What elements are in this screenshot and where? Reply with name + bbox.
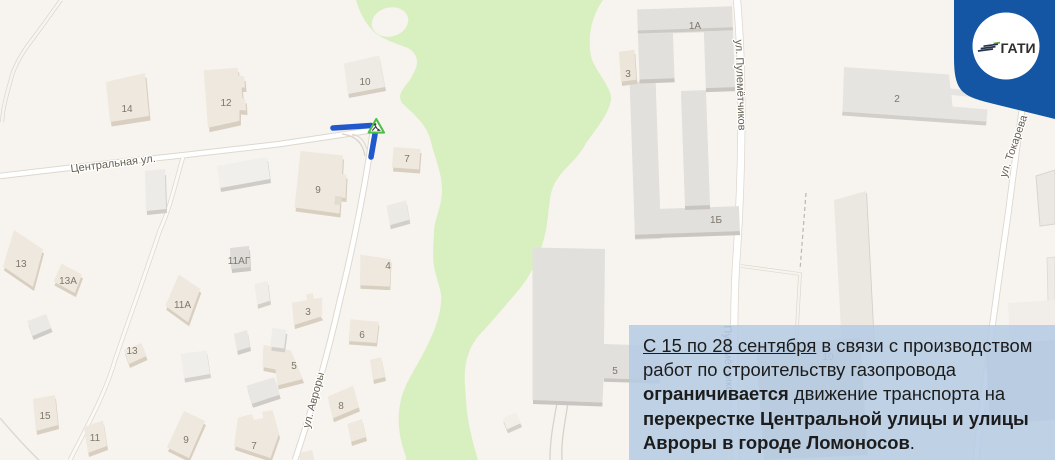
svg-text:5: 5	[612, 366, 618, 377]
svg-text:9: 9	[315, 185, 321, 196]
svg-text:11АГ: 11АГ	[228, 256, 251, 267]
svg-text:3: 3	[305, 307, 311, 318]
svg-text:14: 14	[121, 104, 133, 115]
svg-text:3: 3	[625, 69, 631, 80]
svg-text:13: 13	[15, 259, 27, 270]
svg-text:8: 8	[338, 401, 344, 412]
svg-text:7: 7	[404, 154, 410, 165]
svg-text:11А: 11А	[174, 300, 191, 311]
svg-text:5: 5	[291, 361, 297, 372]
svg-text:1А: 1А	[689, 21, 702, 32]
svg-text:13А: 13А	[59, 276, 77, 287]
svg-text:13: 13	[126, 346, 138, 357]
svg-text:1Б: 1Б	[710, 215, 723, 226]
svg-text:9: 9	[183, 435, 189, 446]
svg-text:12: 12	[220, 98, 232, 109]
svg-text:7: 7	[251, 441, 257, 452]
svg-text:2: 2	[894, 94, 900, 105]
svg-text:11: 11	[90, 433, 101, 444]
svg-text:4: 4	[385, 261, 391, 272]
svg-text:15: 15	[39, 411, 51, 422]
svg-text:10: 10	[359, 77, 371, 88]
svg-text:6: 6	[359, 330, 365, 341]
